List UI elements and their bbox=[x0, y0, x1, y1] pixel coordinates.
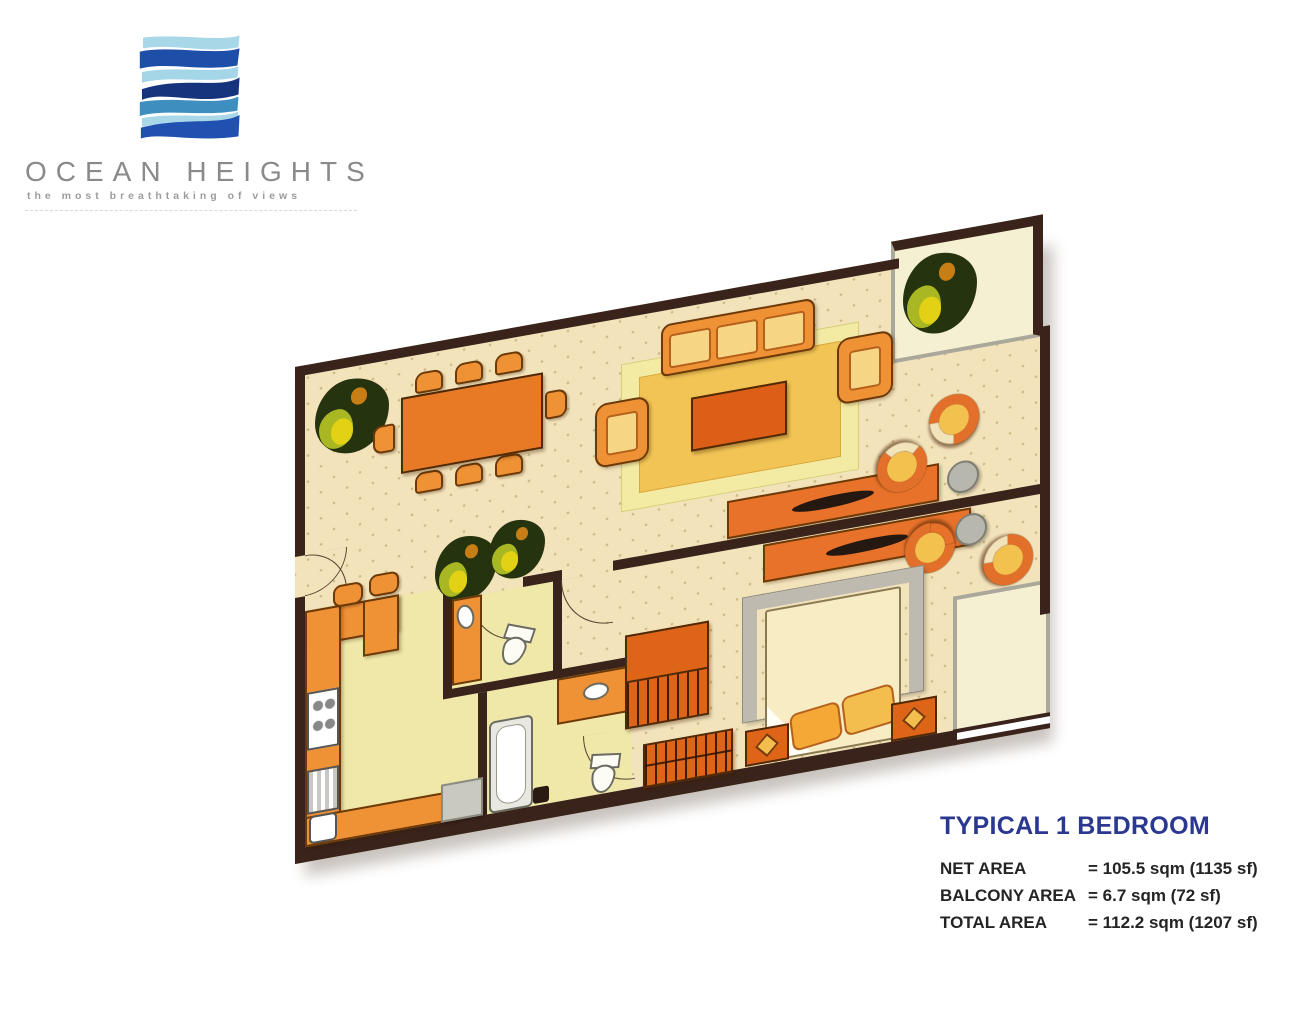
dining-chair bbox=[373, 423, 395, 455]
area-info-block: TYPICAL 1 BEDROOM NET AREA = 105.5 sqm (… bbox=[940, 812, 1280, 936]
floor-drain bbox=[533, 785, 549, 804]
stat-value: = 105.5 sqm (1135 sf) bbox=[1088, 855, 1258, 882]
plan-title: TYPICAL 1 BEDROOM bbox=[940, 812, 1280, 841]
stat-row-total-area: TOTAL AREA = 112.2 sqm (1207 sf) bbox=[940, 909, 1280, 936]
stat-value: = 6.7 sqm (72 sf) bbox=[1088, 882, 1221, 909]
wall bbox=[1040, 325, 1050, 615]
area-stats: NET AREA = 105.5 sqm (1135 sf) BALCONY A… bbox=[940, 855, 1280, 936]
wave-logo-icon bbox=[128, 33, 246, 141]
stat-label: TOTAL AREA bbox=[940, 909, 1088, 936]
armchair bbox=[837, 329, 893, 405]
bathtub bbox=[489, 714, 533, 814]
floor-plan bbox=[295, 231, 1050, 864]
stat-label: BALCONY AREA bbox=[940, 882, 1088, 909]
tv-icon bbox=[826, 530, 908, 560]
plant-icon bbox=[435, 531, 497, 606]
stat-row-net-area: NET AREA = 105.5 sqm (1135 sf) bbox=[940, 855, 1280, 882]
wall bbox=[295, 365, 305, 557]
plant-icon bbox=[489, 515, 545, 583]
balcony-bedroom bbox=[953, 579, 1050, 745]
armchair bbox=[595, 395, 649, 469]
kitchen-sink bbox=[309, 811, 337, 844]
kitchen-counter bbox=[363, 594, 399, 656]
brand-tagline: the most breathtaking of views bbox=[27, 190, 365, 202]
appliance bbox=[441, 777, 483, 823]
tv-icon bbox=[792, 486, 874, 516]
wall bbox=[295, 596, 305, 864]
stat-value: = 112.2 sqm (1207 sf) bbox=[1088, 909, 1258, 936]
brand-divider bbox=[25, 210, 357, 211]
page: { "brand": { "name": "OCEAN HEIGHTS", "t… bbox=[0, 0, 1305, 1034]
dishwasher bbox=[307, 765, 339, 815]
toilet bbox=[587, 753, 618, 791]
brand-name: OCEAN HEIGHTS bbox=[25, 156, 365, 188]
stat-label: NET AREA bbox=[940, 855, 1088, 882]
balcony-railing bbox=[953, 712, 1050, 745]
wall-bathroom bbox=[443, 590, 452, 700]
wardrobe bbox=[625, 621, 709, 730]
stat-row-balcony-area: BALCONY AREA = 6.7 sqm (72 sf) bbox=[940, 882, 1280, 909]
stove bbox=[307, 687, 339, 751]
plant-icon bbox=[903, 246, 977, 339]
